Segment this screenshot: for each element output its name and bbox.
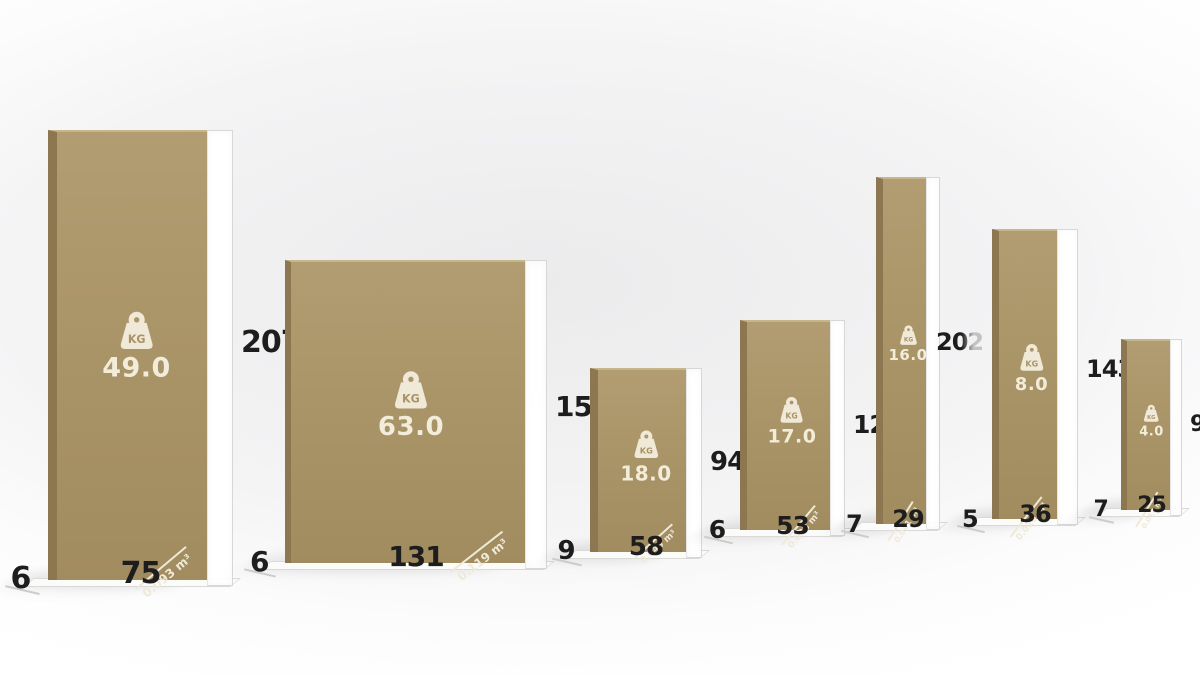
depth-label: 6 bbox=[11, 564, 31, 594]
weight-value: 8.0 bbox=[1015, 376, 1048, 395]
package-panel: KG 16.0 0.041 m³ 202 29 7 bbox=[876, 177, 940, 524]
weight-badge: KG 63.0 bbox=[378, 371, 444, 441]
package-panel: KG 18.0 0.049 m³ 94 58 9 bbox=[590, 368, 702, 552]
width-label: 36 bbox=[992, 502, 1078, 526]
board-face: KG 49.0 0.093 m³ bbox=[48, 130, 207, 580]
weight-value: 63.0 bbox=[378, 414, 444, 441]
kg-text: KG bbox=[903, 337, 912, 343]
width-label: 25 bbox=[1121, 495, 1182, 517]
weight-badge: KG 18.0 bbox=[620, 431, 671, 484]
package-panel: KG 8.0 0.026 m³ 143 36 5 bbox=[992, 229, 1078, 519]
weight-badge: KG 4.0 bbox=[1139, 405, 1164, 440]
weight-icon: KG bbox=[388, 371, 434, 411]
weight-badge: KG 49.0 bbox=[102, 311, 171, 382]
weight-icon: KG bbox=[896, 325, 920, 346]
measure-box bbox=[207, 130, 233, 586]
board-face: KG 63.0 0.119 m³ bbox=[285, 260, 525, 563]
weight-value: 4.0 bbox=[1139, 426, 1164, 440]
board-face: KG 4.0 0.017 m³ bbox=[1121, 339, 1170, 510]
weight-badge: KG 17.0 bbox=[768, 397, 817, 448]
width-label: 53 bbox=[740, 513, 845, 538]
kg-text: KG bbox=[402, 393, 420, 406]
weight-value: 16.0 bbox=[888, 349, 927, 365]
depth-label: 5 bbox=[962, 507, 978, 531]
depth-label: 7 bbox=[1094, 499, 1108, 521]
depth-label: 7 bbox=[846, 512, 862, 536]
weight-value: 17.0 bbox=[768, 427, 817, 447]
package-panel: KG 4.0 0.017 m³ 97 25 7 bbox=[1121, 339, 1182, 510]
depth-label: 9 bbox=[558, 538, 575, 564]
board-face: KG 17.0 0.038 m³ bbox=[740, 320, 830, 530]
board-face: KG 16.0 0.041 m³ bbox=[876, 177, 926, 524]
width-label: 131 bbox=[285, 543, 547, 571]
kg-text: KG bbox=[1025, 360, 1038, 369]
height-label: 97 bbox=[1190, 414, 1200, 436]
weight-icon: KG bbox=[1015, 344, 1048, 373]
package-panel: KG 17.0 0.038 m³ 121 53 6 bbox=[740, 320, 845, 530]
width-label: 29 bbox=[876, 507, 940, 531]
package-panel: KG 49.0 0.093 m³ 207 75 6 bbox=[48, 130, 233, 580]
measure-box bbox=[525, 260, 547, 569]
weight-value: 18.0 bbox=[620, 463, 671, 484]
weight-icon: KG bbox=[1141, 405, 1162, 423]
weight-icon: KG bbox=[776, 397, 808, 425]
weight-icon: KG bbox=[114, 311, 160, 351]
board-face: KG 8.0 0.026 m³ bbox=[992, 229, 1057, 519]
width-label: 75 bbox=[48, 559, 233, 589]
measure-box bbox=[1170, 339, 1182, 516]
scene-stage: KG 49.0 0.093 m³ 207 75 6 KG 63.0 0.119 … bbox=[0, 0, 1200, 675]
weight-badge: KG 8.0 bbox=[1015, 344, 1048, 394]
kg-text: KG bbox=[1147, 415, 1155, 421]
height-label: 202 bbox=[936, 330, 983, 354]
width-label: 58 bbox=[590, 534, 702, 560]
weight-icon: KG bbox=[629, 431, 663, 460]
depth-label: 6 bbox=[709, 517, 725, 542]
measure-box bbox=[830, 320, 845, 536]
kg-text: KG bbox=[786, 411, 798, 420]
board-face: KG 18.0 0.049 m³ bbox=[590, 368, 686, 552]
kg-text: KG bbox=[128, 333, 146, 346]
weight-value: 49.0 bbox=[102, 354, 171, 382]
measure-box bbox=[1057, 229, 1078, 525]
weight-badge: KG 16.0 bbox=[888, 325, 927, 365]
package-panel: KG 63.0 0.119 m³ 152 131 6 bbox=[285, 260, 547, 563]
depth-label: 6 bbox=[250, 548, 268, 576]
kg-text: KG bbox=[639, 446, 652, 456]
